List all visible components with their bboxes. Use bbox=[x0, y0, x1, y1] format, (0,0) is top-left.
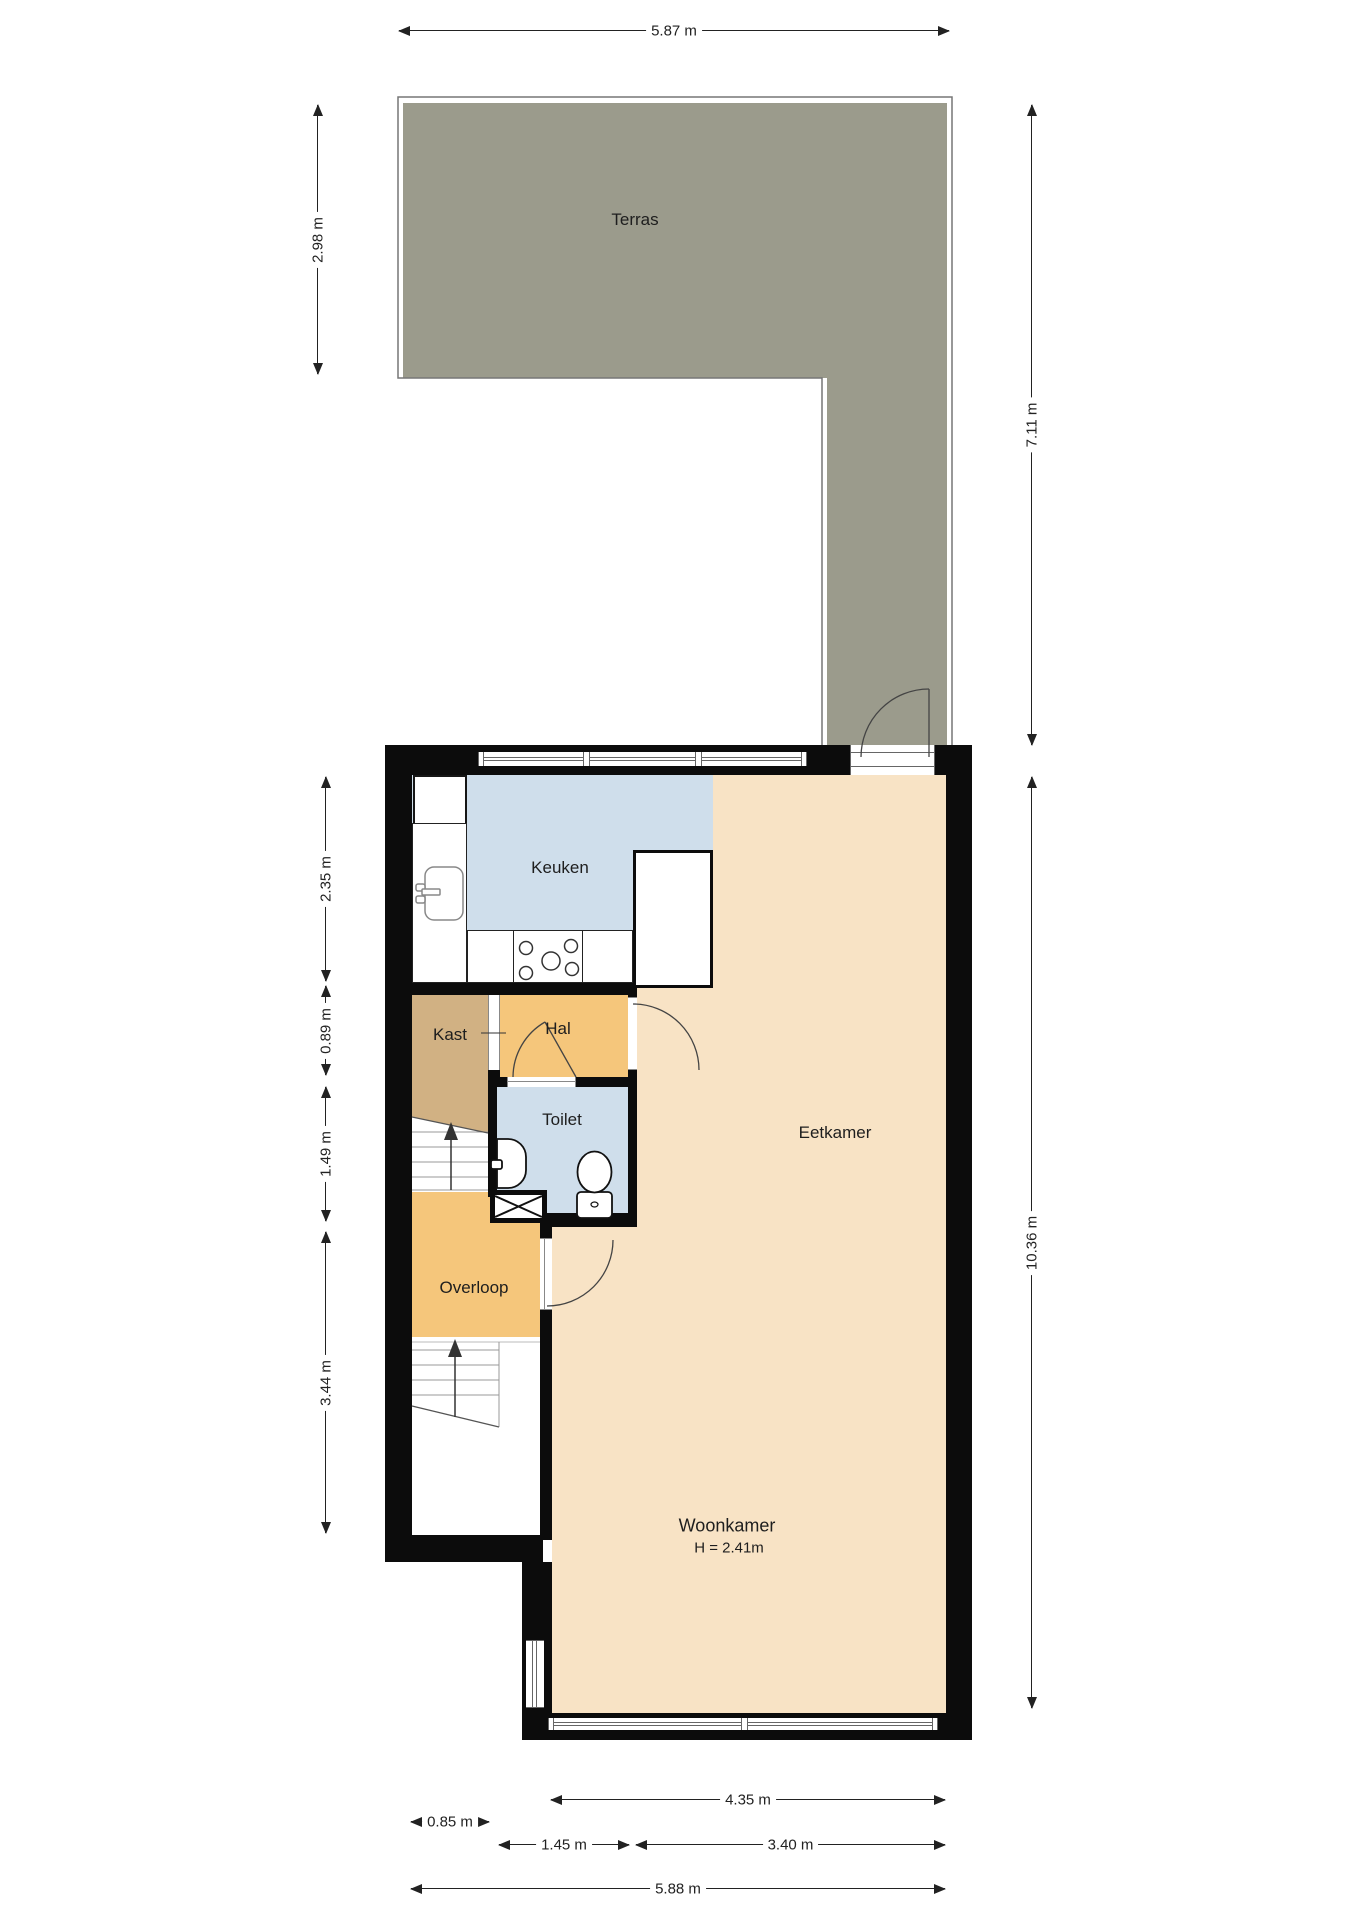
dimension-label: 10.36 m bbox=[1024, 1210, 1041, 1274]
dimension-label: 0.85 m bbox=[422, 1814, 478, 1831]
terrace-door-swing bbox=[861, 689, 929, 757]
dimension-label: 5.87 m bbox=[646, 23, 702, 40]
dimension-label: 1.49 m bbox=[318, 1126, 335, 1182]
hal-eetkamer-door-swing bbox=[633, 1004, 699, 1070]
arrowhead-left-icon bbox=[398, 26, 410, 36]
shaft-cross-icon bbox=[495, 1196, 542, 1217]
dimension-vertical: 0.89 m bbox=[318, 985, 334, 1076]
dimension-horizontal: 4.35 m bbox=[550, 1792, 946, 1808]
arrowhead-left-icon bbox=[410, 1817, 422, 1827]
arrowhead-left-icon bbox=[498, 1840, 510, 1850]
arrowhead-left-icon bbox=[410, 1884, 422, 1894]
room-label-kast: Kast bbox=[433, 1025, 467, 1045]
room-label-woonkamer: Woonkamer bbox=[679, 1516, 776, 1537]
dimension-vertical: 3.44 m bbox=[318, 1231, 334, 1534]
room-label-keuken: Keuken bbox=[531, 858, 589, 878]
arrowhead-down-icon bbox=[321, 1210, 331, 1222]
overloop-eetkamer-door-swing bbox=[547, 1240, 613, 1306]
arrowhead-down-icon bbox=[321, 970, 331, 982]
arrowhead-down-icon bbox=[1027, 1697, 1037, 1709]
stairs-upper bbox=[412, 1117, 488, 1190]
stairs-lower bbox=[412, 1339, 540, 1427]
kitchen-sink-icon bbox=[416, 867, 463, 920]
room-label-toilet: Toilet bbox=[542, 1110, 582, 1130]
dimension-vertical: 7.11 m bbox=[1024, 104, 1040, 746]
arrowhead-up-icon bbox=[1027, 776, 1037, 788]
dimension-vertical: 2.35 m bbox=[318, 776, 334, 982]
dimension-label: 7.11 m bbox=[1024, 398, 1041, 453]
arrowhead-up-icon bbox=[1027, 104, 1037, 116]
arrowhead-down-icon bbox=[1027, 734, 1037, 746]
floor-plan: Terras Keuken Kast Hal Toilet Eetkamer O… bbox=[0, 0, 1358, 1920]
wc-icon bbox=[577, 1152, 612, 1219]
dimension-horizontal: 5.88 m bbox=[410, 1881, 946, 1897]
arrowhead-up-icon bbox=[321, 1231, 331, 1243]
arrowhead-right-icon bbox=[478, 1817, 490, 1827]
arrowhead-left-icon bbox=[635, 1840, 647, 1850]
arrowhead-right-icon bbox=[938, 26, 950, 36]
dimension-label: 4.35 m bbox=[720, 1792, 776, 1809]
dimension-vertical: 1.49 m bbox=[318, 1086, 334, 1222]
arrowhead-down-icon bbox=[313, 363, 323, 375]
dimension-horizontal: 1.45 m bbox=[498, 1837, 630, 1853]
arrowhead-up-icon bbox=[321, 985, 331, 997]
dimension-label: 2.35 m bbox=[318, 851, 335, 907]
dimension-vertical: 2.98 m bbox=[310, 104, 326, 375]
dimension-label: 5.88 m bbox=[650, 1881, 706, 1898]
arrowhead-right-icon bbox=[618, 1840, 630, 1850]
room-label-overloop: Overloop bbox=[440, 1278, 509, 1298]
room-label-terras: Terras bbox=[611, 210, 658, 230]
stove-burners-icon bbox=[520, 940, 579, 980]
room-label-hal: Hal bbox=[545, 1019, 571, 1039]
room-label-eetkamer: Eetkamer bbox=[799, 1123, 872, 1143]
dimension-horizontal: 0.85 m bbox=[410, 1814, 490, 1830]
arrowhead-left-icon bbox=[550, 1795, 562, 1805]
arrowhead-right-icon bbox=[934, 1884, 946, 1894]
dimension-label: 1.45 m bbox=[536, 1837, 592, 1854]
dimension-horizontal: 5.87 m bbox=[398, 23, 950, 39]
dimension-label: 3.44 m bbox=[318, 1355, 335, 1411]
room-label-woonkamer-height: H = 2.41m bbox=[694, 1540, 764, 1557]
dimension-label: 0.89 m bbox=[318, 1003, 335, 1059]
arrowhead-down-icon bbox=[321, 1064, 331, 1076]
detail-layer bbox=[0, 0, 1358, 1920]
toilet-sink-icon bbox=[491, 1139, 526, 1188]
arrowhead-right-icon bbox=[934, 1840, 946, 1850]
dimension-horizontal: 3.40 m bbox=[635, 1837, 946, 1853]
dimension-vertical: 10.36 m bbox=[1024, 776, 1040, 1709]
arrowhead-up-icon bbox=[321, 776, 331, 788]
dimension-label: 2.98 m bbox=[310, 212, 327, 268]
arrowhead-down-icon bbox=[321, 1522, 331, 1534]
arrowhead-right-icon bbox=[934, 1795, 946, 1805]
arrowhead-up-icon bbox=[313, 104, 323, 116]
dimension-label: 3.40 m bbox=[763, 1837, 819, 1854]
arrowhead-up-icon bbox=[321, 1086, 331, 1098]
